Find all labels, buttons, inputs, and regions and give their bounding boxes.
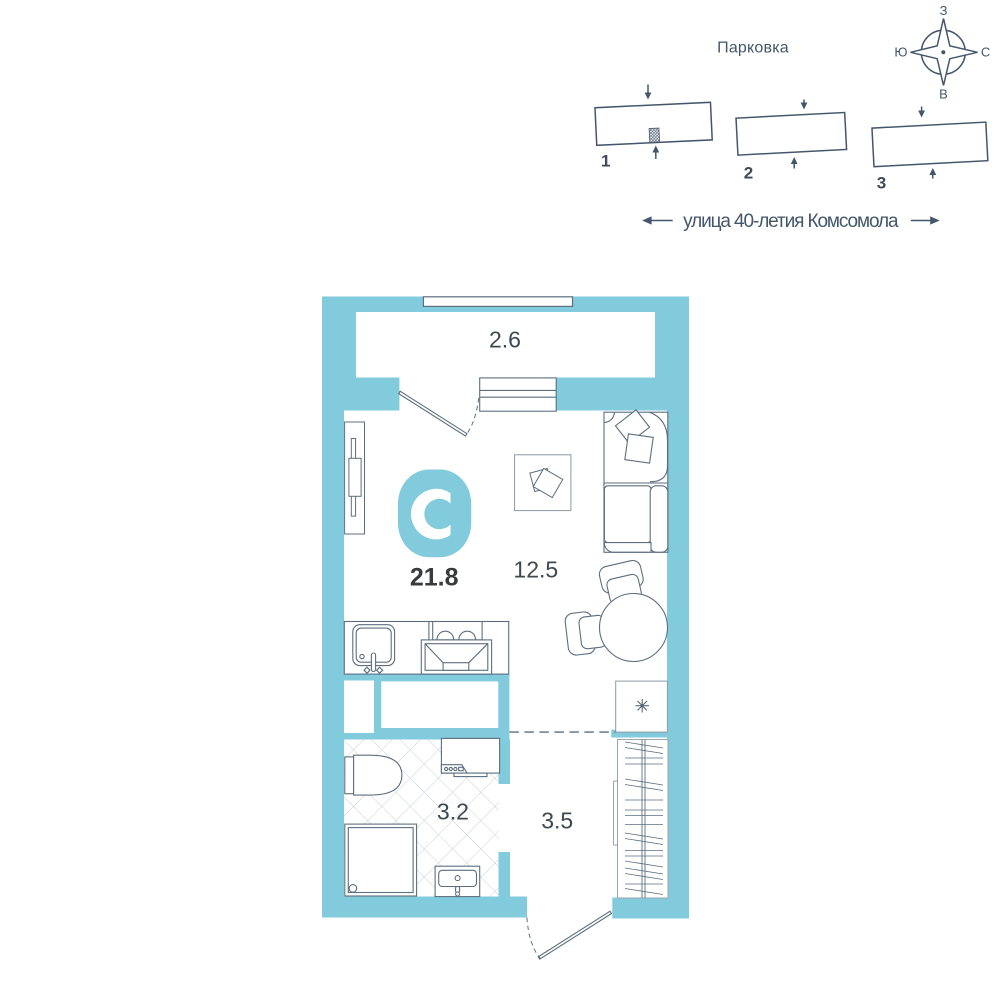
svg-text:3.2: 3.2 [437,799,469,825]
svg-text:2: 2 [744,164,753,183]
svg-text:3: 3 [877,174,886,193]
svg-text:улица 40-летия Комсомола: улица 40-летия Комсомола [683,211,899,232]
svg-text:2.6: 2.6 [489,327,521,353]
svg-text:В: В [939,87,948,102]
svg-text:12.5: 12.5 [513,557,558,583]
svg-text:3.5: 3.5 [541,808,573,834]
svg-text:С: С [981,45,990,60]
svg-text:З: З [940,3,948,18]
svg-text:Парковка: Парковка [717,40,789,57]
svg-text:Ю: Ю [894,45,907,60]
svg-text:1: 1 [601,152,610,171]
svg-text:21.8: 21.8 [410,564,459,592]
